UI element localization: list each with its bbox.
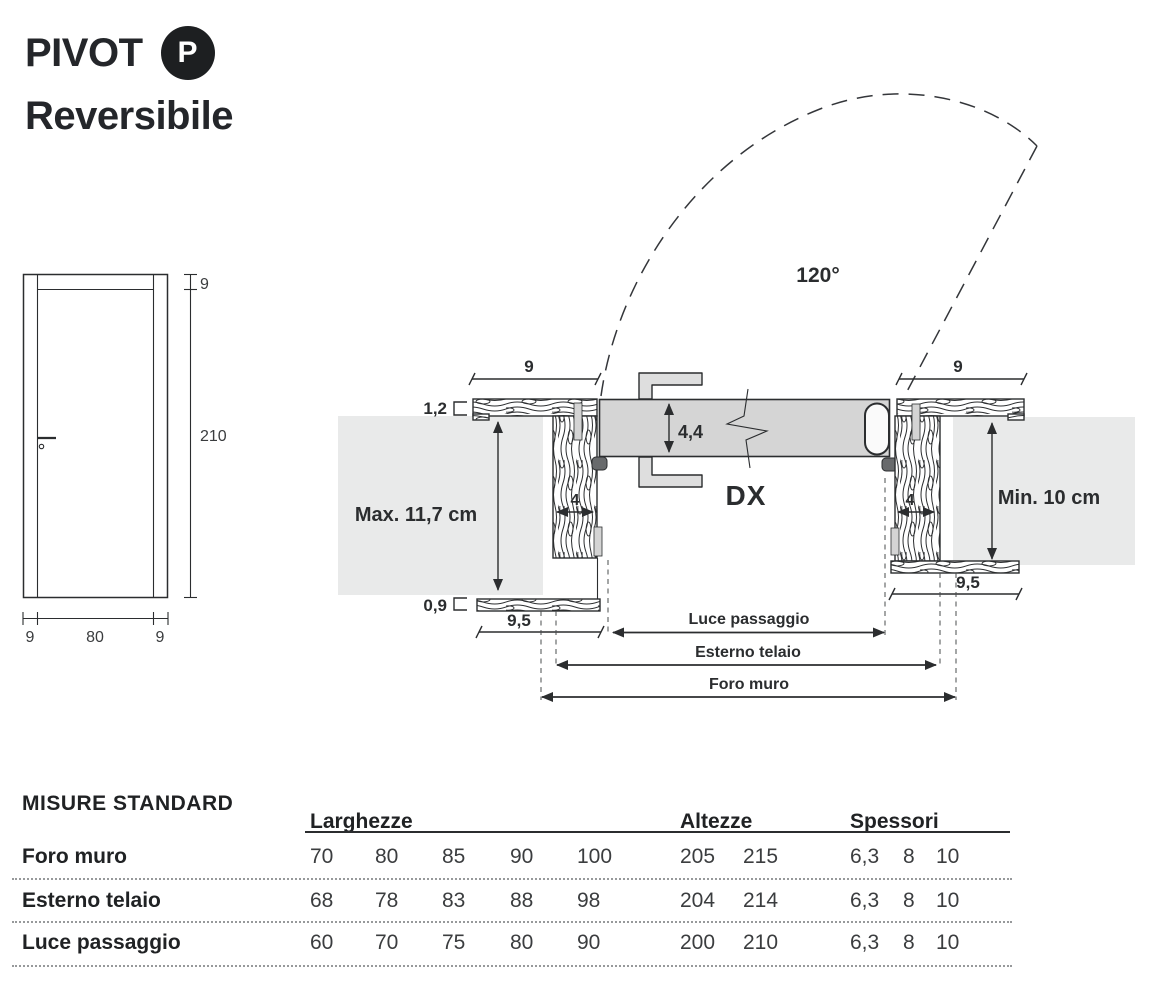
reveal-bottom-label: 0,9 (423, 596, 447, 615)
cell: 8 (903, 889, 915, 913)
cell: 80 (375, 845, 398, 869)
left-counter-label: 9,5 (507, 611, 531, 630)
cell: 10 (936, 845, 959, 869)
cell: 98 (577, 889, 600, 913)
leaf-thickness-label: 4,4 (678, 422, 703, 442)
cell: 88 (510, 889, 533, 913)
row-label-foro-muro: Foro muro (22, 845, 127, 869)
cell: 70 (310, 845, 333, 869)
cell: 100 (577, 845, 612, 869)
right-jamb-seal-lower (891, 528, 899, 555)
left-jamb-depth-label: 4 (571, 492, 580, 509)
cell: 80 (510, 931, 533, 955)
cell: 214 (743, 889, 778, 913)
elevation-bottom-left-label: 9 (26, 629, 35, 646)
right-counter-label: 9,5 (956, 573, 980, 592)
cell: 10 (936, 889, 959, 913)
col-group-larghezze: Larghezze (310, 810, 413, 834)
hand-label: DX (726, 480, 767, 511)
min-clearance-label: Min. 10 cm (998, 487, 1100, 509)
pivot-cap-left-icon (592, 457, 607, 470)
elevation-bottom-right-label: 9 (156, 629, 165, 646)
left-jamb-seal (574, 403, 582, 440)
right-counter-architrave (891, 561, 1019, 573)
cell: 6,3 (850, 931, 879, 955)
esterno-telaio-label: Esterno telaio (695, 644, 801, 661)
cell: 10 (936, 931, 959, 955)
header-rule (305, 831, 1010, 833)
table-title: MISURE STANDARD (22, 792, 233, 816)
swing-arc (601, 94, 1037, 396)
pivot-hinge-icon (865, 404, 889, 455)
row-label-esterno-telaio: Esterno telaio (22, 889, 161, 913)
col-group-altezze: Altezze (680, 810, 752, 834)
cell: 200 (680, 931, 715, 955)
reveal-bottom-bracket (454, 598, 467, 610)
row-label-luce-passaggio: Luce passaggio (22, 931, 181, 955)
cell: 60 (310, 931, 333, 955)
max-clearance-label: Max. 11,7 cm (355, 504, 477, 526)
door-elevation: 9 210 9 80 9 (23, 275, 227, 647)
cell: 70 (375, 931, 398, 955)
row-separator (12, 878, 1012, 880)
door-plan-section: 120° 9 1,2 Max. 11,7 cm 4 0,9 9,5 4,4 (338, 94, 1135, 700)
elevation-height-label: 210 (200, 428, 227, 445)
row-separator (12, 965, 1012, 967)
reveal-top-bracket (454, 402, 467, 415)
open-leaf-line (903, 146, 1037, 399)
elevation-frame (24, 275, 168, 598)
door-keyhole-icon (39, 444, 43, 448)
swing-angle-label: 120° (796, 264, 839, 287)
col-group-spessori: Spessori (850, 810, 939, 834)
handle-bottom-icon (639, 457, 702, 487)
cell: 6,3 (850, 845, 879, 869)
luce-passaggio-label: Luce passaggio (689, 611, 810, 628)
cell: 8 (903, 931, 915, 955)
cell: 90 (577, 931, 600, 955)
cell: 205 (680, 845, 715, 869)
cell: 8 (903, 845, 915, 869)
left-jamb-seal-lower (594, 527, 602, 556)
door-leaf (600, 400, 890, 457)
left-architrave-label: 9 (524, 357, 533, 376)
right-jamb-depth-label: 4 (906, 492, 915, 509)
cell: 215 (743, 845, 778, 869)
cell: 85 (442, 845, 465, 869)
right-architrave-lip (1008, 414, 1024, 420)
row-separator (12, 921, 1012, 923)
handle-top-icon (639, 373, 702, 399)
elevation-top-rail-label: 9 (200, 276, 209, 293)
cell: 75 (442, 931, 465, 955)
foro-muro-label: Foro muro (709, 676, 789, 693)
reveal-top-label: 1,2 (423, 399, 447, 418)
cell: 204 (680, 889, 715, 913)
cell: 6,3 (850, 889, 879, 913)
elevation-bottom-center-label: 80 (86, 629, 104, 646)
cell: 83 (442, 889, 465, 913)
cell: 78 (375, 889, 398, 913)
right-architrave-label: 9 (953, 357, 962, 376)
left-counter-architrave (477, 599, 600, 611)
left-architrave-lip (473, 414, 489, 420)
cell: 90 (510, 845, 533, 869)
right-jamb-seal (912, 404, 920, 440)
technical-drawing: 9 210 9 80 9 120° 9 1,2 (0, 0, 1157, 770)
cell: 68 (310, 889, 333, 913)
cell: 210 (743, 931, 778, 955)
